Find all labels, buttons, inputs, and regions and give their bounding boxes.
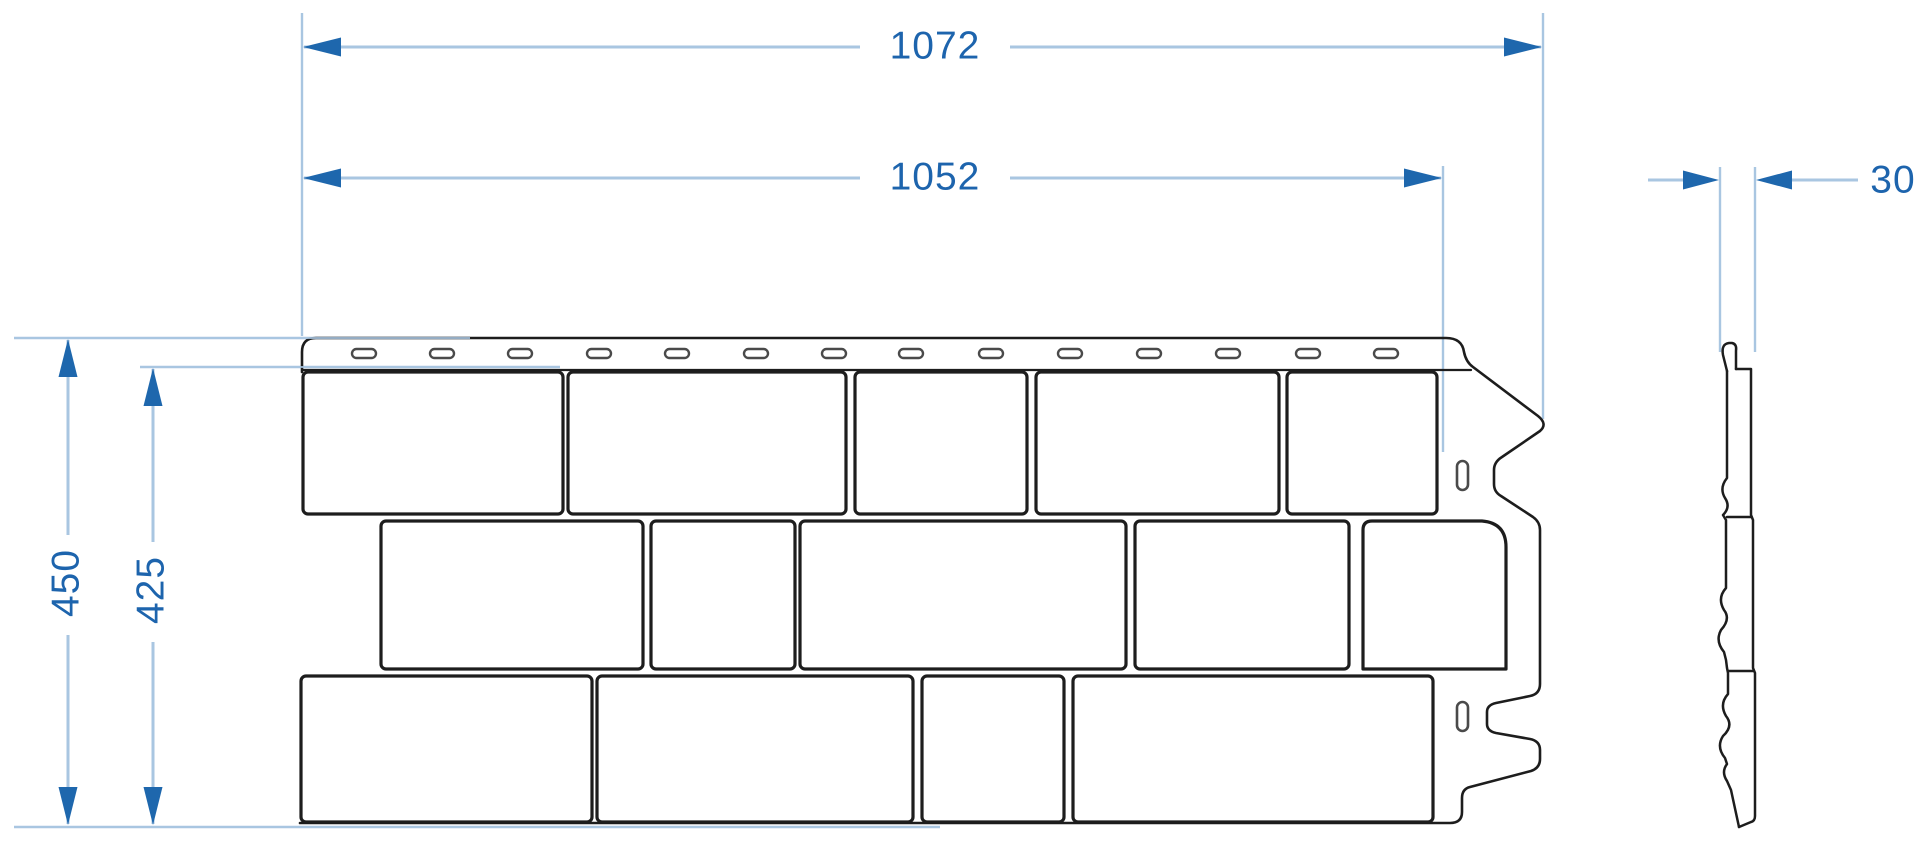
brick: [381, 521, 643, 669]
stone-blocks: [301, 372, 1506, 822]
nail-slot: [744, 349, 768, 358]
arrow-left-icon: [303, 38, 341, 57]
panel-side-view: [1719, 343, 1755, 827]
nail-slot: [899, 349, 923, 358]
arrow-left-icon: [1756, 171, 1792, 190]
brick: [1135, 521, 1349, 669]
brick: [1363, 521, 1506, 669]
brick: [922, 676, 1064, 822]
nail-slot: [587, 349, 611, 358]
arrow-down-icon: [144, 787, 163, 825]
arrow-down-icon: [59, 787, 78, 825]
side-view-right-edge: [1736, 369, 1755, 827]
nail-slot: [665, 349, 689, 358]
brick: [1073, 676, 1433, 822]
brick: [651, 521, 795, 669]
brick: [1036, 372, 1279, 514]
dimension-label-thickness: 30: [1870, 161, 1915, 200]
nail-slot: [1374, 349, 1398, 358]
brick: [597, 676, 913, 822]
brick: [855, 372, 1027, 514]
nail-slot: [822, 349, 846, 358]
nail-slot-vertical: [1457, 461, 1468, 490]
brick: [568, 372, 846, 514]
nail-slot: [979, 349, 1003, 358]
brick: [1287, 372, 1437, 514]
drawing-canvas: 1072 1052 450 425 30: [0, 0, 1920, 854]
dimension-label-panel-height: 425: [132, 556, 171, 624]
brick: [303, 372, 563, 514]
nail-slot: [1296, 349, 1320, 358]
nail-slot: [430, 349, 454, 358]
nail-strip: [352, 349, 1398, 358]
nail-slot: [352, 349, 376, 358]
arrow-left-icon: [303, 169, 341, 188]
brick: [800, 521, 1126, 669]
nail-slot: [1216, 349, 1240, 358]
arrow-right-icon: [1504, 38, 1542, 57]
side-view-hook: [1723, 343, 1737, 371]
arrow-up-icon: [59, 339, 78, 377]
brick: [301, 676, 592, 822]
nail-slot: [1058, 349, 1082, 358]
nail-slot-vertical: [1457, 702, 1468, 731]
side-view-left-edge: [1719, 371, 1739, 827]
arrow-up-icon: [144, 368, 163, 406]
extension-overlaps: [14, 338, 560, 367]
arrow-right-icon: [1683, 171, 1719, 190]
dimension-label-overall-height: 450: [47, 549, 86, 617]
nail-slot: [1137, 349, 1161, 358]
dimension-label-panel-width: 1052: [890, 158, 981, 197]
arrow-right-icon: [1404, 169, 1442, 188]
panel-drawing: [0, 0, 1920, 854]
dimension-label-overall-width: 1072: [890, 27, 981, 66]
nail-slot: [508, 349, 532, 358]
